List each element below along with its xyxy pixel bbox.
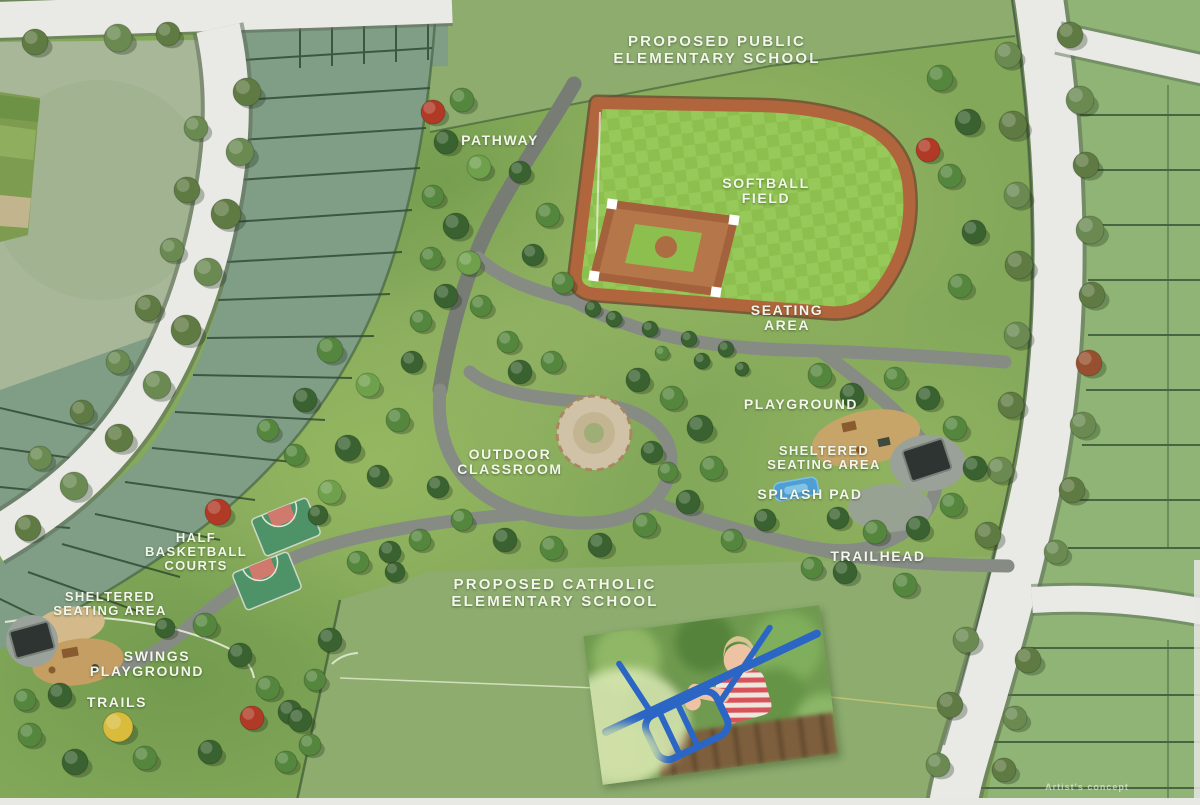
label-sheltered-seating-east: SHELTEREDSEATING AREA bbox=[767, 444, 881, 472]
label-half-basketball-courts: HALFBASKETBALLCOURTS bbox=[145, 531, 247, 573]
label-proposed-catholic-school: PROPOSED CATHOLICELEMENTARY SCHOOL bbox=[451, 576, 658, 610]
side-street-south bbox=[1032, 599, 1200, 612]
label-softball-field: SOFTBALLFIELD bbox=[722, 176, 809, 206]
label-proposed-public-school: PROPOSED PUBLICELEMENTARY SCHOOL bbox=[613, 33, 820, 67]
label-artists-concept: Artist's concept bbox=[1045, 780, 1129, 795]
label-pathway: PATHWAY bbox=[461, 133, 539, 148]
label-playground-east: PLAYGROUND bbox=[744, 397, 858, 412]
label-seating-area: SEATINGAREA bbox=[751, 303, 823, 333]
softball-field-shape bbox=[576, 103, 910, 312]
label-trailhead: TRAILHEAD bbox=[830, 549, 925, 564]
inset-photo-child-on-swing bbox=[583, 605, 839, 785]
label-swings: SWINGS bbox=[124, 649, 190, 664]
label-sheltered-seating-west: SHELTEREDSEATING AREA bbox=[53, 590, 167, 618]
label-playground-west: PLAYGROUND bbox=[90, 664, 204, 679]
label-outdoor-classroom: OUTDOORCLASSROOM bbox=[457, 447, 562, 477]
label-splash-pad: SPLASH PAD bbox=[757, 487, 862, 502]
label-trails: TRAILS bbox=[87, 695, 147, 710]
outdoor-classroom-plaza bbox=[557, 396, 631, 470]
top-road bbox=[0, 5, 452, 20]
shelter-west bbox=[6, 615, 58, 667]
site-plan: PROPOSED PUBLICELEMENTARY SCHOOL PATHWAY… bbox=[0, 0, 1200, 805]
